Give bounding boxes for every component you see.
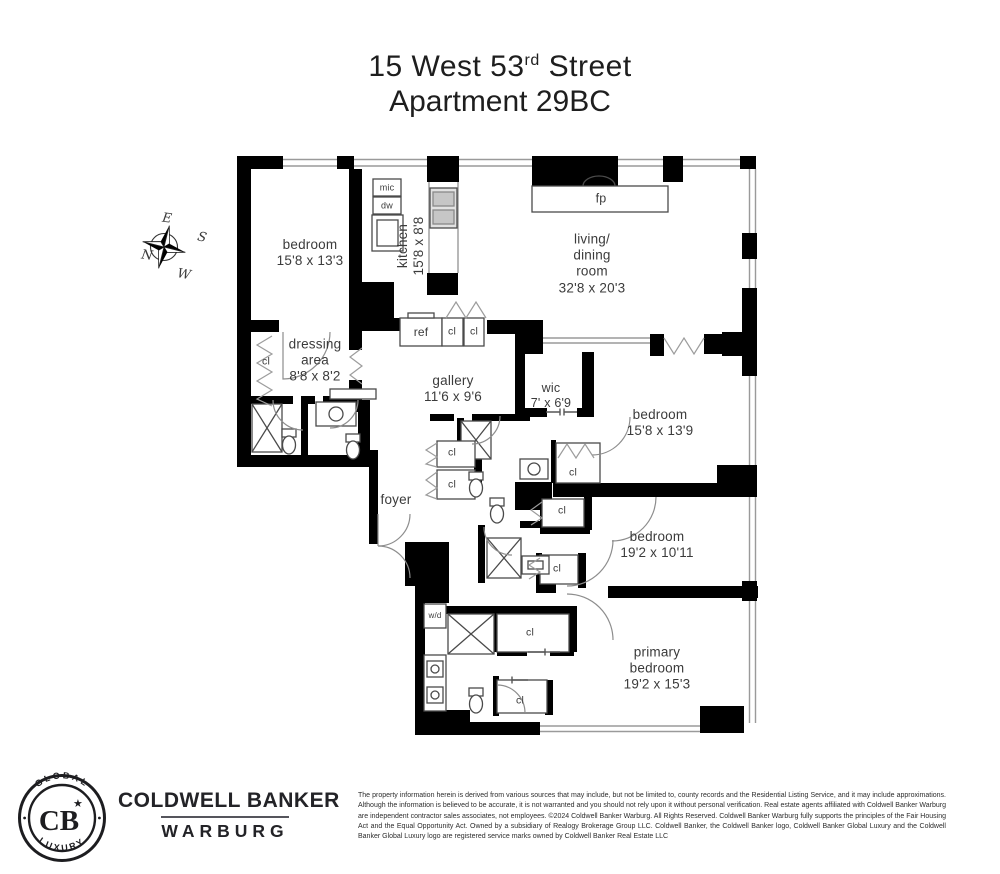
disclaimer-text: The property information herein is deriv… [358, 791, 946, 843]
global-luxury-seal: GLOBAL LUXURY CB ★ [16, 771, 108, 865]
microwave-label: mic [380, 183, 395, 194]
fireplace-label: fp [596, 192, 607, 207]
washer-dryer-label: w/d [428, 611, 441, 621]
refrigerator-label: ref [414, 325, 429, 339]
seal-luxury-text: LUXURY [37, 835, 87, 853]
toilet [282, 429, 504, 713]
closet-label: cl [262, 356, 270, 369]
brand-logo: COLDWELL BANKER WARBURG [118, 789, 332, 842]
room-label-bedroom2: bedroom15'8 x 13'9 [627, 407, 694, 439]
seal-star-icon: ★ [73, 798, 83, 810]
room-label-bedroom3: bedroom19'2 x 10'11 [620, 529, 693, 561]
closet-label: cl [516, 695, 524, 708]
medicine-cabinet [330, 389, 376, 399]
room-label-wic: wic7' x 6'9 [531, 381, 571, 411]
brand-warburg: WARBURG [118, 821, 332, 842]
closet-label: cl [448, 479, 456, 492]
dishwasher-label: dw [381, 201, 393, 212]
room-label-primary-bedroom: primary bedroom19'2 x 15'3 [624, 645, 691, 694]
room-label-foyer: foyer [380, 492, 411, 508]
stove-burners [433, 192, 454, 206]
seal-global-text: GLOBAL [33, 771, 91, 789]
seal-dot [23, 817, 26, 820]
compass-north-label: N [140, 247, 154, 264]
room-label-gallery: gallery11'6 x 9'6 [424, 373, 482, 405]
room-label-kitchen: kitchen15'8 x 8'8 [395, 217, 427, 276]
compass-west-label: W [176, 266, 192, 284]
closet-label: cl [470, 326, 478, 339]
room-label-bedroom1: bedroom15'8 x 13'3 [277, 237, 344, 269]
floorplan-page: 15 West 53rd Street Apartment 29BC [0, 0, 1000, 874]
closet-label: cl [553, 563, 561, 576]
closet-label: cl [558, 505, 566, 518]
closet-box [437, 441, 475, 467]
compass-east-label: E [161, 211, 173, 228]
seal-dot [98, 817, 101, 820]
floor-plan-svg [0, 0, 1000, 874]
closet-label: cl [448, 447, 456, 460]
refrigerator-coil [408, 313, 434, 318]
closet-label: cl [526, 627, 534, 640]
room-label-living-dining: living/ dining room32'8 x 20'3 [559, 232, 626, 297]
closet-label: cl [448, 326, 456, 339]
closet-box [556, 443, 600, 483]
room-label-dressing-area: dressing area8'8 x 8'2 [289, 337, 342, 386]
brand-rule [161, 816, 289, 818]
brand-coldwell-banker: COLDWELL BANKER [118, 789, 332, 813]
closet-label: cl [569, 467, 577, 480]
